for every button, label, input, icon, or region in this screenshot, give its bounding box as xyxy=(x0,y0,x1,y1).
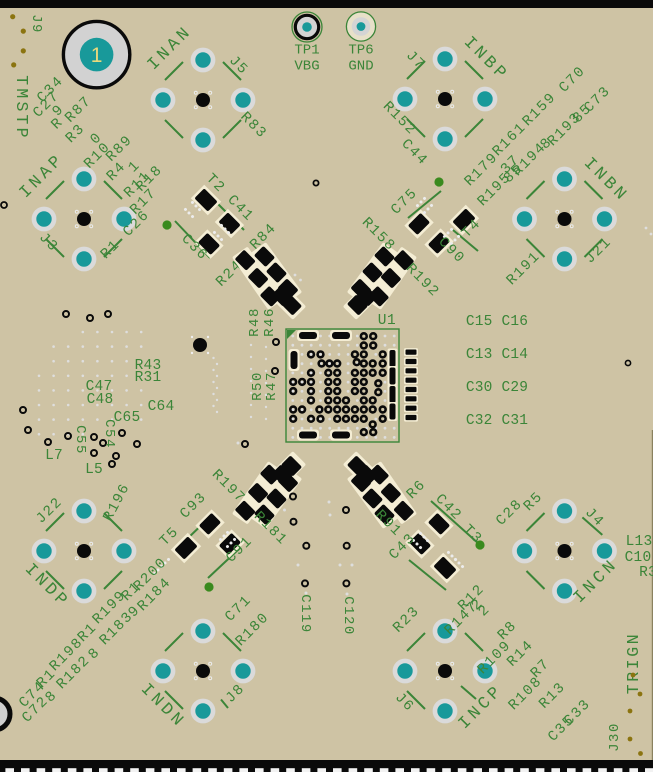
svg-text:C30 C29: C30 C29 xyxy=(466,380,528,396)
svg-text:R47: R47 xyxy=(264,371,280,401)
svg-text:TP1: TP1 xyxy=(294,43,319,59)
svg-text:C13 C14: C13 C14 xyxy=(466,347,528,363)
svg-text:TP6: TP6 xyxy=(348,43,373,59)
svg-text:J30: J30 xyxy=(607,722,623,752)
svg-text:L7: L7 xyxy=(45,448,63,464)
svg-text:C32 C31: C32 C31 xyxy=(466,413,528,429)
svg-text:U1: U1 xyxy=(378,313,396,329)
svg-text:GND: GND xyxy=(348,59,373,75)
svg-text:L5: L5 xyxy=(85,462,103,478)
svg-text:R31: R31 xyxy=(135,370,162,386)
svg-text:TMSTP: TMSTP xyxy=(12,75,31,141)
svg-text:C119: C119 xyxy=(297,594,313,634)
svg-text:C120: C120 xyxy=(340,596,356,636)
svg-text:C54: C54 xyxy=(101,419,117,449)
svg-text:C48: C48 xyxy=(87,392,114,408)
svg-text:R3: R3 xyxy=(639,565,653,581)
svg-text:C55: C55 xyxy=(72,425,88,455)
svg-text:VBG: VBG xyxy=(294,59,319,75)
svg-text:L13: L13 xyxy=(626,534,653,550)
svg-text:R48: R48 xyxy=(247,307,263,337)
svg-text:C10: C10 xyxy=(625,550,652,566)
svg-text:C64: C64 xyxy=(148,399,175,415)
svg-text:J9: J9 xyxy=(28,14,44,34)
svg-text:TRIGN: TRIGN xyxy=(624,632,643,695)
svg-text:1: 1 xyxy=(91,44,103,67)
svg-text:R46: R46 xyxy=(262,307,278,337)
svg-text:C15 C16: C15 C16 xyxy=(466,314,528,330)
